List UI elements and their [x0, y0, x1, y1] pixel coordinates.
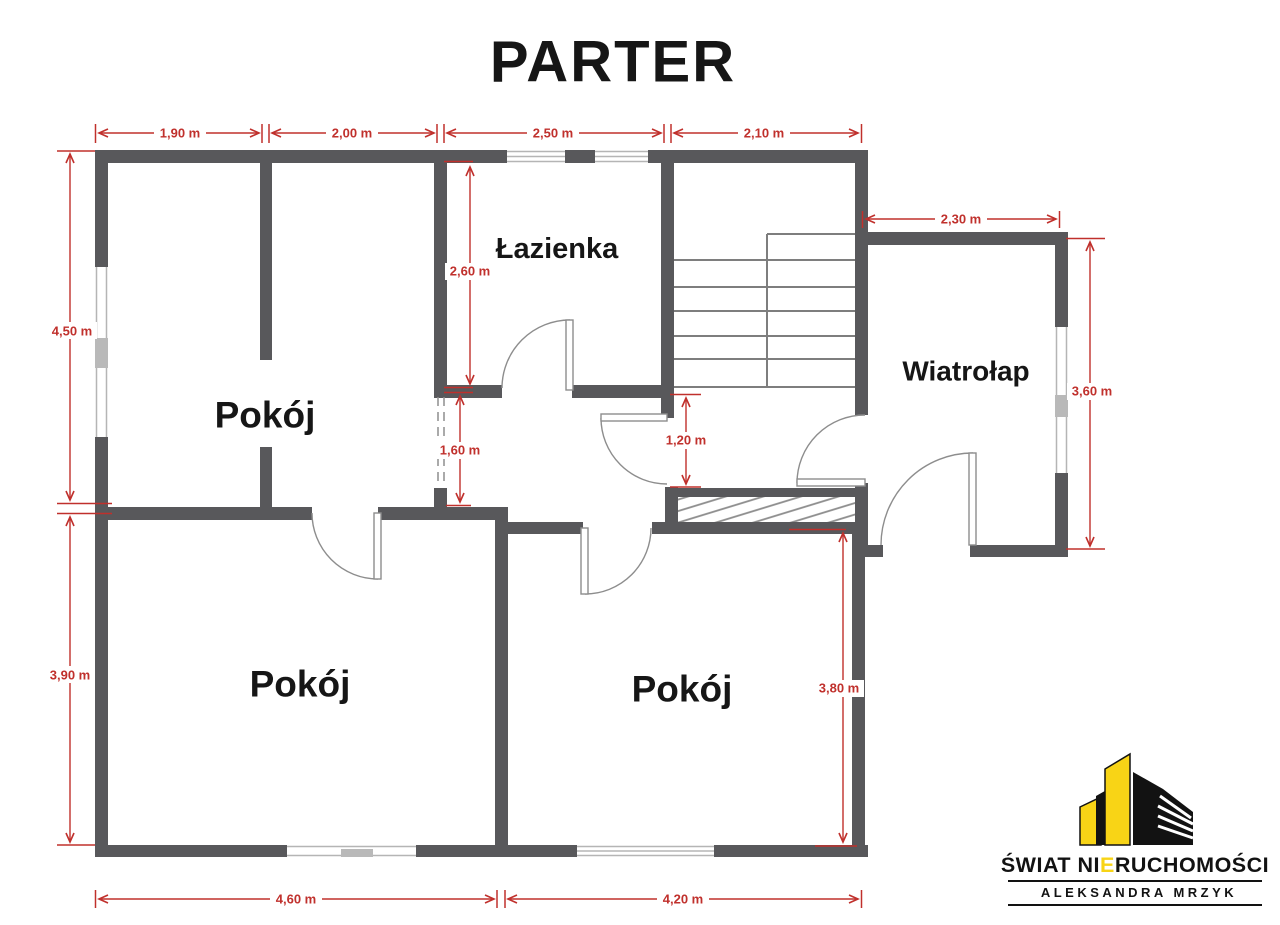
window-top-1	[507, 150, 565, 163]
door-bathroom	[502, 320, 573, 390]
window-bottom-1	[287, 845, 416, 857]
wall-segment	[855, 232, 1068, 245]
dimension-label: 4,60 m	[276, 892, 316, 907]
window-top-2	[595, 150, 648, 163]
wall-segment	[565, 150, 595, 163]
door-hall-corridor	[601, 414, 667, 484]
wall-segment	[95, 845, 287, 857]
company-logo: ŚWIAT NIERUCHOMOŚCI ALEKSANDRA MRZYK	[1001, 754, 1269, 905]
wall-segment	[1055, 473, 1068, 557]
wall-segment	[970, 545, 1068, 557]
room-label-top-left: Pokój	[215, 395, 316, 436]
wall-segment	[495, 515, 508, 855]
dimension-label: 1,90 m	[160, 126, 200, 141]
wall-segment	[495, 522, 583, 534]
room-labels: Pokój Łazienka Wiatrołap Pokój Pokój	[215, 233, 1030, 710]
window-left	[95, 267, 108, 437]
dimension-label: 3,60 m	[1072, 384, 1112, 399]
floor-plan-page: PARTER	[0, 0, 1280, 925]
dimension-label: 2,10 m	[744, 126, 784, 141]
wall-segment	[572, 385, 674, 398]
door-room-bottom-middle	[581, 528, 651, 594]
logo-buildings-icon	[1080, 754, 1193, 845]
window-vestibule	[1055, 327, 1068, 473]
room-label-bottom-left: Pokój	[250, 664, 351, 705]
logo-person-text: ALEKSANDRA MRZYK	[1041, 885, 1237, 900]
wall-segment	[668, 488, 862, 497]
dimension-label: 1,20 m	[666, 433, 706, 448]
dimension-label: 4,20 m	[663, 892, 703, 907]
room-label-bathroom: Łazienka	[496, 233, 619, 265]
wall-segment	[95, 507, 312, 520]
door-entrance	[881, 453, 976, 545]
wall-segment	[95, 150, 108, 267]
dimension-label: 2,30 m	[941, 212, 981, 227]
page-title: PARTER	[490, 30, 736, 95]
hatched-area	[678, 497, 855, 522]
dimension-label: 2,50 m	[533, 126, 573, 141]
wall-segment	[260, 447, 272, 515]
wall-segment	[661, 150, 674, 418]
logo-brand-post: RUCHOMOŚCI	[1115, 852, 1269, 877]
dimension-label: 4,50 m	[52, 324, 92, 339]
staircase	[674, 234, 855, 387]
wall-segment	[95, 437, 108, 855]
wall-segment	[648, 150, 868, 163]
wall-segment	[260, 150, 272, 360]
dimension-label: 1,60 m	[440, 443, 480, 458]
window-bottom-2	[577, 845, 714, 857]
floor-plan-canvas: PARTER	[0, 0, 1280, 925]
dimension-label: 2,00 m	[332, 126, 372, 141]
room-label-vestibule: Wiatrołap	[902, 356, 1029, 387]
door-room-bottom-left	[312, 513, 381, 579]
door-vestibule-hall	[797, 415, 865, 486]
wall-segment	[652, 522, 868, 534]
opening-dashed	[438, 397, 444, 485]
wall-segment	[855, 545, 883, 557]
wall-segment	[714, 845, 868, 857]
dimension-label: 3,90 m	[50, 668, 90, 683]
logo-brand-text: ŚWIAT NIERUCHOMOŚCI	[1001, 852, 1269, 877]
dimension-label: 2,60 m	[450, 264, 490, 279]
wall-segment	[378, 507, 508, 520]
dimension-label: 3,80 m	[819, 681, 859, 696]
logo-brand-e: E	[1100, 853, 1115, 877]
room-label-bottom-middle: Pokój	[632, 669, 733, 710]
wall-segment	[1055, 232, 1068, 327]
logo-brand-pre: ŚWIAT NI	[1001, 852, 1100, 877]
wall-segment	[855, 150, 868, 415]
